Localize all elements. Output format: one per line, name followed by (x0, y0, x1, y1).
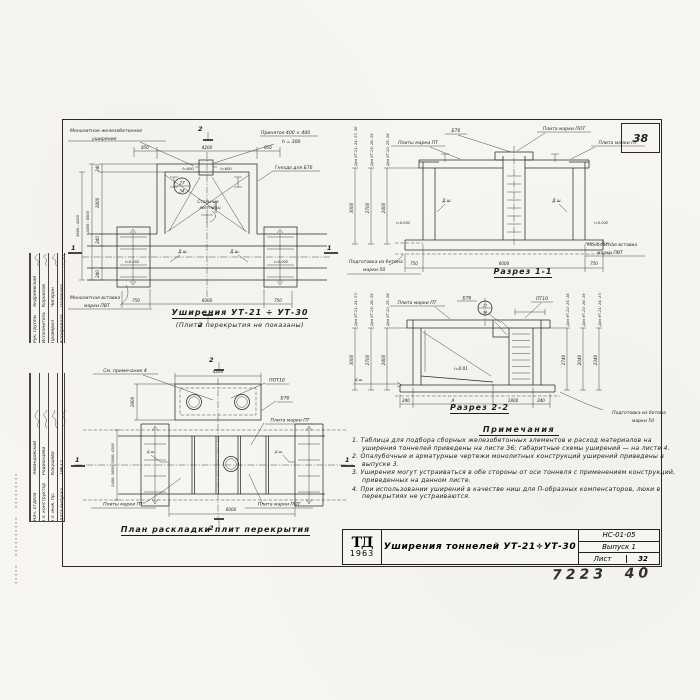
label-dsh-left: Д.ш. (177, 249, 188, 254)
s2-node-top: 27 (483, 304, 488, 308)
s1-label-bt6: БТ6 (452, 128, 461, 134)
signature-scribble (53, 373, 72, 429)
label-monolithic-insert-2: марки ПВТ (84, 303, 111, 309)
label-l800: ℓ=800 (181, 167, 194, 171)
dim-left-240c: 240 (95, 270, 100, 278)
s2-dim-240-right: 240 (537, 398, 545, 403)
p4-label-pot10: ПОТ10 (269, 378, 285, 384)
dim-bottom-750-left: 750 (132, 298, 140, 303)
s1-label-prep: Подготовка из бетона (349, 259, 403, 265)
stamp-role: Проверил (51, 309, 56, 343)
stamp-name: Андреевский (33, 269, 38, 307)
note-item-2: 2. Опалубочные и арматурные чертежи моно… (352, 453, 686, 468)
p4-label-plate-pt: Плита марки ПТ (270, 418, 310, 424)
plan-widening-dim-lines (79, 147, 292, 308)
sheet-label: Лист (579, 555, 627, 563)
p4-label-plates-pt: Плиты марки ПТ (103, 502, 144, 508)
stamp-role: Копировала (60, 309, 65, 343)
label-accepted-400: Принятое 400 × 400 (261, 130, 310, 136)
stamp-row: Дата выпуска 1963 г. (57, 373, 66, 521)
label-socket-bt6: Гнездо для БТ6 (275, 165, 313, 171)
dim-top-4200: 4200 (202, 145, 213, 150)
s2-lchain1-label: Для УТ-21; 24; 27; 30 (354, 292, 358, 327)
plan-widening-title: Уширения УТ-21 ÷ УТ-30 (140, 308, 340, 317)
stamp-role: Дата выпуска (60, 477, 65, 521)
label-slope-left: i=0.002 (125, 260, 140, 264)
s1-label-slope-left: i=0.002 (396, 221, 411, 225)
s1-label-dsh-left: Д.ш. (441, 198, 452, 203)
s2-rchain1-label: Для УТ-22; 25; 28 (566, 293, 570, 327)
label-monolithic-insert: Монолитная вставка (70, 295, 120, 301)
handwritten-inventory-number: 7223 40 (552, 565, 692, 584)
slab-layout-plan-title: План раскладки плит перекрытия (108, 525, 323, 534)
dim-left-240b: 240 (95, 236, 100, 244)
stamp-name: Полякова (60, 269, 65, 307)
signature-scribble (53, 253, 72, 267)
s2-rchain2-value: 2040 (577, 354, 582, 365)
note-item-4: 4. При использовании уширений в качестве… (352, 486, 686, 501)
label-dsh-right: Д.ш. (229, 249, 240, 254)
stamp-role: Гл. конструктор (42, 477, 47, 521)
dim-left-240a: 240 (95, 164, 100, 172)
section-1-1-title: Разрез 1-1 (478, 267, 568, 276)
plan-slabs-linework (75, 378, 353, 518)
label-monolithic-widening: Монолитное железобетонное (70, 128, 142, 134)
note-item-3: 3. Уширения могут устраиваться в обе сто… (352, 469, 686, 484)
title-block: ТД 1963 Уширения тоннелей УТ-21÷УТ-30 НС… (342, 529, 660, 565)
section-2-2-title: Разрез 2-2 (432, 403, 527, 412)
s2-lchain2-value: 2700 (365, 354, 370, 365)
stamp-name: Кокушева (51, 431, 56, 475)
logo-td: ТД (352, 537, 373, 550)
p4-mark-2-top: 2 (209, 356, 214, 364)
s1-label-plate-pt: Плита марки ПТ (598, 140, 638, 146)
stamp-name: Корнилов (42, 269, 47, 307)
s1-label-slope-right: i=0.002 (594, 221, 609, 225)
p4-dim-left-rot: 2400; 3000; 3600; 4200 (111, 442, 115, 486)
issue-number: Выпуск 1 (579, 542, 659, 554)
section-mark-1-left: 1 (71, 244, 76, 252)
label-h300: h = 300 (282, 139, 301, 145)
stamp-name: Левандовский (33, 431, 38, 475)
s1-dim-750-left: 750 (410, 261, 418, 266)
s1-dim-750-right: 750 (590, 261, 598, 266)
s1-label-plate-pot: Плита марки ПОТ (543, 126, 587, 132)
s2-lchain3-value: 2400 (381, 354, 386, 365)
p4-dim-6000: 6000 (226, 507, 237, 512)
s2-rchain1-value: 1740 (561, 354, 566, 365)
node-ref-bottom: 34 (179, 189, 185, 194)
label-monolithic-widening-2: уширение (91, 137, 117, 142)
dim-bottom-750-right: 750 (274, 298, 282, 303)
s1-label-dsh-right: Д.ш. (551, 198, 562, 203)
s2-rchain2-label: Для УТ-23; 26; 29 (582, 293, 586, 327)
s2-label-plate-pt: Плита марки ПТ (397, 300, 437, 306)
stamp-row: Копировала Полякова (57, 253, 66, 343)
section-mark-1-right: 1 (327, 244, 332, 252)
stamp-signature-table-bottom: Нач. отдела Левандовский Гл. конструктор… (29, 373, 65, 522)
drawing-code: НС-01-05 (579, 530, 659, 542)
section-mark-2-top: 2 (198, 125, 203, 133)
s2-lchain3-label: Для УТ-22; 25; 28 (386, 293, 390, 327)
stamp-role: Гл. инж. пр. (51, 477, 56, 521)
s1-chain2-label: Для УТ-23; 26; 29 (370, 133, 374, 167)
sheet-number: 32 (627, 555, 659, 563)
s1-chain3-label: Для УТ-22; 25; 28 (386, 133, 390, 167)
p4-mark-1-left: 1 (75, 456, 80, 464)
section2-linework (353, 298, 560, 396)
p4-label-see-note: См. примечание 4 (103, 368, 147, 374)
s1-label-plates-pt: Плиты марки ПТ (398, 140, 439, 146)
section1-dim-lines (352, 168, 603, 272)
s1-dim-6000: 6000 (499, 261, 510, 266)
dim-bottom-6000: 6000 (202, 298, 213, 303)
stamp-signature-table-top: Рук. группы Андреевский Исполнитель Корн… (29, 253, 65, 343)
section1-linework (395, 146, 613, 254)
s2-lchain2-label: Для УТ-23; 26; 29 (370, 293, 374, 327)
stamp-role: Нач. отдела (33, 477, 38, 521)
s2-label-prep: Подготовка из бетона (612, 410, 666, 416)
s1-chain1-value: 3000 (349, 202, 354, 213)
stamp-name: Чигарин (51, 269, 56, 307)
drawing-title: Уширения тоннелей УТ-21÷УТ-30 (382, 530, 579, 564)
stamp-role: Исполнитель (42, 309, 47, 343)
plan-widening-subtitle: (Плиты перекрытия не показаны) (130, 321, 350, 329)
edge-smudge-marks (8, 470, 24, 590)
label-l600: ℓ=600 (219, 167, 232, 171)
plan-widening-linework (82, 152, 330, 299)
s2-node-bottom: 34 (483, 311, 488, 315)
s2-rchain3-value: 2340 (593, 354, 598, 365)
s1-label-insert: Монолитная вставка (587, 242, 637, 248)
s2-label-pt10: ПТ10 (536, 296, 548, 302)
stamp-name: Родионцева (42, 431, 47, 475)
scanned-drawing-sheet: 38 850 4200 850 750 6000 750 (0, 0, 700, 700)
s2-label-slope: i=0.01 (454, 366, 468, 371)
design-org-logo: ТД 1963 (343, 530, 382, 564)
label-slope-right: i=0.002 (274, 260, 289, 264)
notes-block: Примечания 1. Таблица для подбора сборны… (352, 425, 686, 502)
p4-label-dsh-right: Д.ш. (274, 450, 283, 454)
stamp-role: Рук. группы (33, 309, 38, 343)
s2-label-bt6: БТ6 (463, 296, 472, 302)
p4-label-dsh-left: Д.ш. (146, 450, 155, 454)
notes-title: Примечания (352, 425, 686, 434)
s1-chain2-value: 2700 (365, 202, 370, 213)
s2-rchain3-label: Для УТ-21; 24; 27; 30 (598, 292, 602, 327)
s2-dim-240-left: 240 (402, 398, 410, 403)
p4-mark-1-right: 1 (345, 456, 350, 464)
node-ref-top: 27 (179, 181, 185, 186)
stamp-name: 1963 г. (60, 431, 65, 475)
p4-label-plate-pot: Плита марки ПОТ (258, 502, 302, 508)
dim-left-rot1: 2400 ; 6000 (86, 210, 90, 233)
logo-year: 1963 (350, 550, 374, 558)
slab-layout-plan-drawing: 4200 1800 2400; 3000; 3600; 4200 6000 См… (63, 352, 363, 537)
s1-chain3-value: 2400 (381, 202, 386, 213)
s1-label-insert2: марки ПВТ (597, 250, 624, 256)
s1-chain1-label: Для УТ-21; 24; 27; 30 (354, 126, 358, 167)
p4-label-bt6: БТ6 (281, 396, 290, 402)
section-1-1-drawing: Для УТ-21; 24; 27; 30 Для УТ-23; 26; 29 … (345, 122, 660, 290)
dim-left-rot2: 3600 ; 4200 (76, 214, 80, 237)
p4-dim-1800: 1800 (130, 396, 135, 407)
note-item-1: 1. Таблица для подбора сборных железобет… (352, 437, 686, 452)
s1-label-prep2: марки 50 (363, 267, 385, 273)
s2-label-prep2: марки 50 (632, 418, 654, 424)
label-l400: ℓ=400 (214, 201, 218, 214)
dim-left-1800: 1800 (95, 197, 100, 208)
